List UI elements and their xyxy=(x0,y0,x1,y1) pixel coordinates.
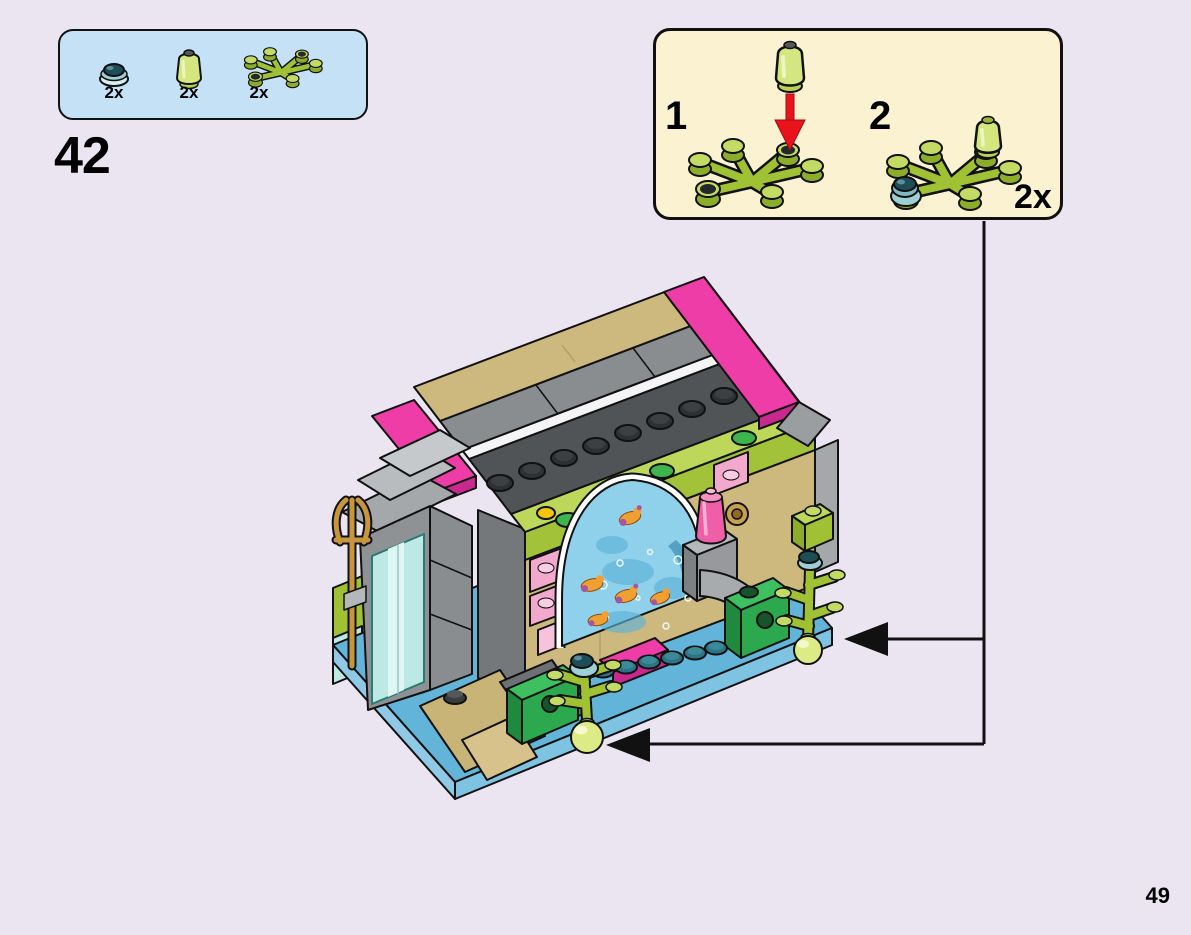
placement-arrow-right xyxy=(844,622,888,656)
plant-piece xyxy=(689,139,823,208)
page-number: 49 xyxy=(1128,883,1170,909)
scene-artwork xyxy=(0,0,1191,935)
part-count-plant: 2x xyxy=(241,83,277,103)
callout-substep-1-art xyxy=(689,42,823,209)
bottle-piece xyxy=(776,42,804,93)
substep-2-label: 2 xyxy=(869,94,891,139)
lego-model xyxy=(333,277,845,799)
part-count-bottle: 2x xyxy=(171,83,207,103)
part-icon-lime-seagrass-plant xyxy=(244,48,322,88)
bottle-attached xyxy=(975,117,1001,159)
step-number: 42 xyxy=(54,126,110,186)
gold-ring-detail xyxy=(726,503,748,525)
yellow-stud xyxy=(537,507,555,519)
teal-tile-attached xyxy=(891,177,921,206)
part-count-teal-tile: 2x xyxy=(96,83,132,103)
instruction-page: 42 2x 2x 2x 1 2 2x 49 xyxy=(0,0,1191,935)
substep-1-label: 1 xyxy=(665,94,687,139)
callout-quantity: 2x xyxy=(1014,178,1052,217)
insert-arrow-icon xyxy=(775,94,805,150)
callout-substep-2-art xyxy=(887,117,1021,211)
